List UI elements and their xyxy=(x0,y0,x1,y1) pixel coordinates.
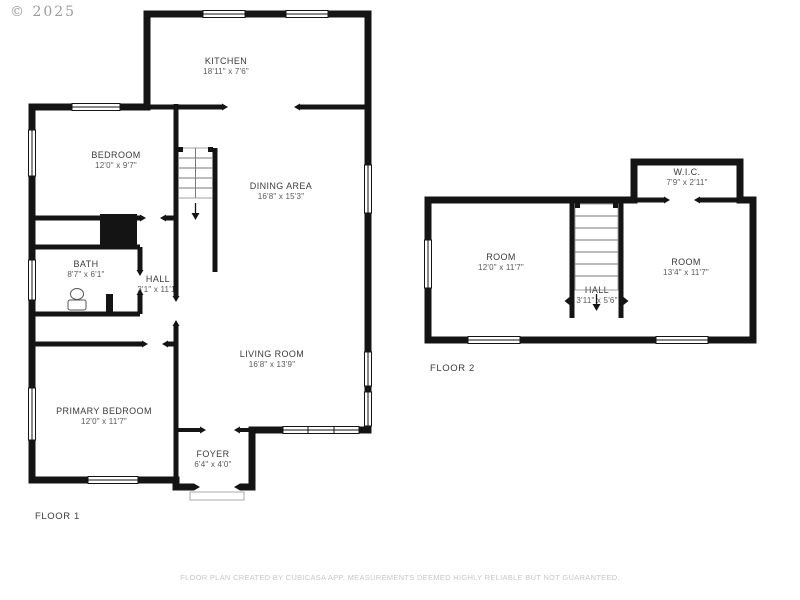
floor-plan-page: © 2025 KITCHEN 18'11" x 7'6" BEDROOM 12'… xyxy=(0,0,800,600)
disclaimer-text: FLOOR PLAN CREATED BY CUBICASA APP. MEAS… xyxy=(0,573,800,582)
room-name: BATH xyxy=(67,259,104,269)
room-label-hall-floor2: HALL 3'11" x 5'6" xyxy=(576,285,617,305)
room-label-kitchen: KITCHEN 18'11" x 7'6" xyxy=(203,56,249,76)
room-dims: 3'1" x 11'1" xyxy=(137,285,178,294)
room-label-bath: BATH 8'7" x 6'1" xyxy=(67,259,104,279)
room-dims: 6'4" x 4'0" xyxy=(194,460,231,469)
labels-layer: © 2025 KITCHEN 18'11" x 7'6" BEDROOM 12'… xyxy=(0,0,800,600)
copyright-text: © 2025 xyxy=(10,4,76,20)
room-dims: 3'11" x 5'6" xyxy=(576,296,617,305)
room-name: PRIMARY BEDROOM xyxy=(56,406,152,416)
room-name: W.I.C. xyxy=(666,167,707,177)
room-label-foyer: FOYER 6'4" x 4'0" xyxy=(194,449,231,469)
room-dims: 12'0" x 11'7" xyxy=(56,417,152,426)
room-dims: 13'4" x 11'7" xyxy=(663,268,709,277)
room-label-wic: W.I.C. 7'9" x 2'11" xyxy=(666,167,707,187)
room-dims: 16'8" x 13'9" xyxy=(240,360,304,369)
room-name: BEDROOM xyxy=(91,150,140,160)
room-name: ROOM xyxy=(478,252,524,262)
floor2-label: FLOOR 2 xyxy=(430,363,475,374)
room-label-room-left: ROOM 12'0" x 11'7" xyxy=(478,252,524,272)
room-label-primary-bedroom: PRIMARY BEDROOM 12'0" x 11'7" xyxy=(56,406,152,426)
room-name: FOYER xyxy=(194,449,231,459)
floor1-label: FLOOR 1 xyxy=(35,511,80,522)
room-dims: 8'7" x 6'1" xyxy=(67,270,104,279)
room-name: KITCHEN xyxy=(203,56,249,66)
room-label-living: LIVING ROOM 16'8" x 13'9" xyxy=(240,349,304,369)
room-name: LIVING ROOM xyxy=(240,349,304,359)
room-name: HALL xyxy=(137,274,178,284)
room-label-hall-floor1: HALL 3'1" x 11'1" xyxy=(137,274,178,294)
room-dims: 18'11" x 7'6" xyxy=(203,67,249,76)
room-dims: 7'9" x 2'11" xyxy=(666,178,707,187)
room-name: ROOM xyxy=(663,257,709,267)
room-label-dining: DINING AREA 16'8" x 15'3" xyxy=(250,181,312,201)
room-name: DINING AREA xyxy=(250,181,312,191)
room-dims: 12'0" x 11'7" xyxy=(478,263,524,272)
room-name: HALL xyxy=(576,285,617,295)
room-label-room-right: ROOM 13'4" x 11'7" xyxy=(663,257,709,277)
room-label-bedroom: BEDROOM 12'0" x 9'7" xyxy=(91,150,140,170)
room-dims: 16'8" x 15'3" xyxy=(250,192,312,201)
room-dims: 12'0" x 9'7" xyxy=(91,161,140,170)
